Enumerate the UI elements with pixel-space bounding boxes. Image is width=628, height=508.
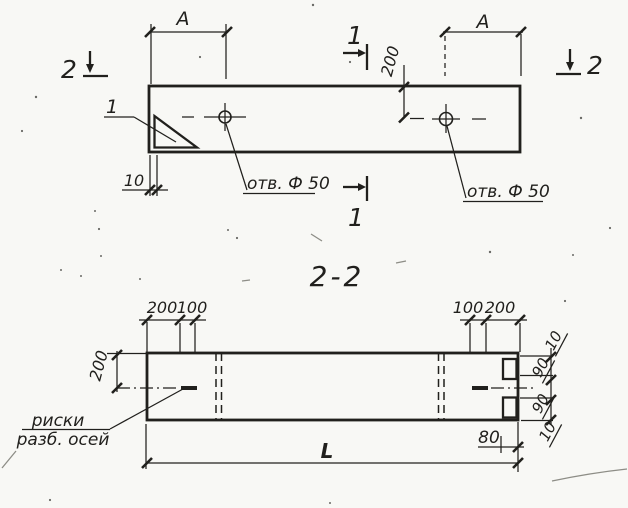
technical-drawing-canvas: 1 А А 200 bbox=[0, 0, 628, 508]
section-cut-2-left-label: 2 bbox=[61, 55, 77, 84]
scanned-drawing-page: 1 А А 200 bbox=[0, 0, 628, 508]
section-cut-2-left: 2 bbox=[61, 51, 108, 84]
section-arrow-down-icon bbox=[86, 64, 94, 73]
corner-detail-triangle bbox=[155, 116, 198, 148]
section-view: 2-2 200 bbox=[16, 260, 568, 472]
dim-top-left-outer-label: 200 bbox=[147, 298, 178, 317]
hole-callout-left: отв. Ф 50 bbox=[226, 124, 330, 194]
corner-detail-callout-label: 1 bbox=[106, 96, 118, 118]
dim-right-chain-label-0: 10 bbox=[541, 328, 566, 353]
dim-top-right-inner-label: 100 bbox=[453, 298, 484, 317]
hole-callout-right: отв. Ф 50 bbox=[447, 126, 550, 202]
hole-left bbox=[182, 103, 246, 131]
dim-right-chain-label-2: 90 bbox=[528, 391, 553, 416]
dim-200-plan: 200 bbox=[377, 44, 409, 123]
axis-marks-label-line2: разб. осей bbox=[16, 430, 110, 450]
dim-10-plan: 10 bbox=[122, 155, 168, 196]
dim-80: 80 bbox=[478, 428, 524, 453]
dim-L-label: L bbox=[321, 439, 334, 463]
dim-A-left-label: А bbox=[175, 8, 190, 30]
section-cut-2-right-label: 2 bbox=[587, 51, 603, 80]
axis-mark-dashed-lines bbox=[216, 353, 444, 420]
dim-A-left: А bbox=[145, 8, 232, 84]
dim-top-left-inner-label: 100 bbox=[177, 298, 208, 317]
corner-detail-callout: 1 bbox=[104, 96, 176, 142]
section-cut-1-bottom: 1 bbox=[343, 176, 367, 232]
section-arrow-down-icon bbox=[566, 62, 574, 71]
dim-200-section-left-label: 200 bbox=[86, 348, 112, 382]
dim-L: L bbox=[142, 422, 523, 472]
dim-top-left-group: 200 100 bbox=[139, 298, 207, 352]
section-cut-2-right: 2 bbox=[556, 49, 603, 80]
dim-top-right-group: 100 200 bbox=[453, 298, 527, 352]
dim-10-plan-label: 10 bbox=[124, 171, 144, 190]
beam-outline-plan bbox=[149, 86, 520, 152]
section-cut-1-top: 1 bbox=[343, 21, 367, 70]
dim-right-chain: 10 90 90 10 bbox=[520, 325, 568, 447]
end-notch-bottom bbox=[503, 398, 517, 418]
hole-label-right: отв. Ф 50 bbox=[467, 182, 550, 202]
dim-200-plan-label: 200 bbox=[377, 44, 403, 78]
section-title: 2-2 bbox=[310, 260, 365, 293]
section-cut-1-bottom-label: 1 bbox=[348, 203, 364, 232]
dim-200-section-left: 200 bbox=[86, 348, 146, 393]
dim-right-chain-label-3: 10 bbox=[535, 419, 560, 444]
dim-A-right-label: А bbox=[475, 11, 490, 33]
plan-view: 1 А А 200 bbox=[61, 8, 603, 232]
end-notch-top bbox=[503, 359, 517, 379]
dim-A-right: А bbox=[440, 11, 526, 76]
dim-top-right-outer-label: 200 bbox=[485, 298, 516, 317]
beam-outline-section bbox=[147, 353, 518, 420]
dim-80-label: 80 bbox=[478, 428, 500, 448]
section-arrow-right-icon bbox=[358, 49, 366, 57]
hole-label-left: отв. Ф 50 bbox=[247, 174, 330, 194]
axis-marks-label-line1: риски bbox=[31, 411, 85, 431]
section-arrow-right-icon bbox=[358, 183, 366, 191]
section-cut-1-top-label: 1 bbox=[347, 21, 363, 50]
